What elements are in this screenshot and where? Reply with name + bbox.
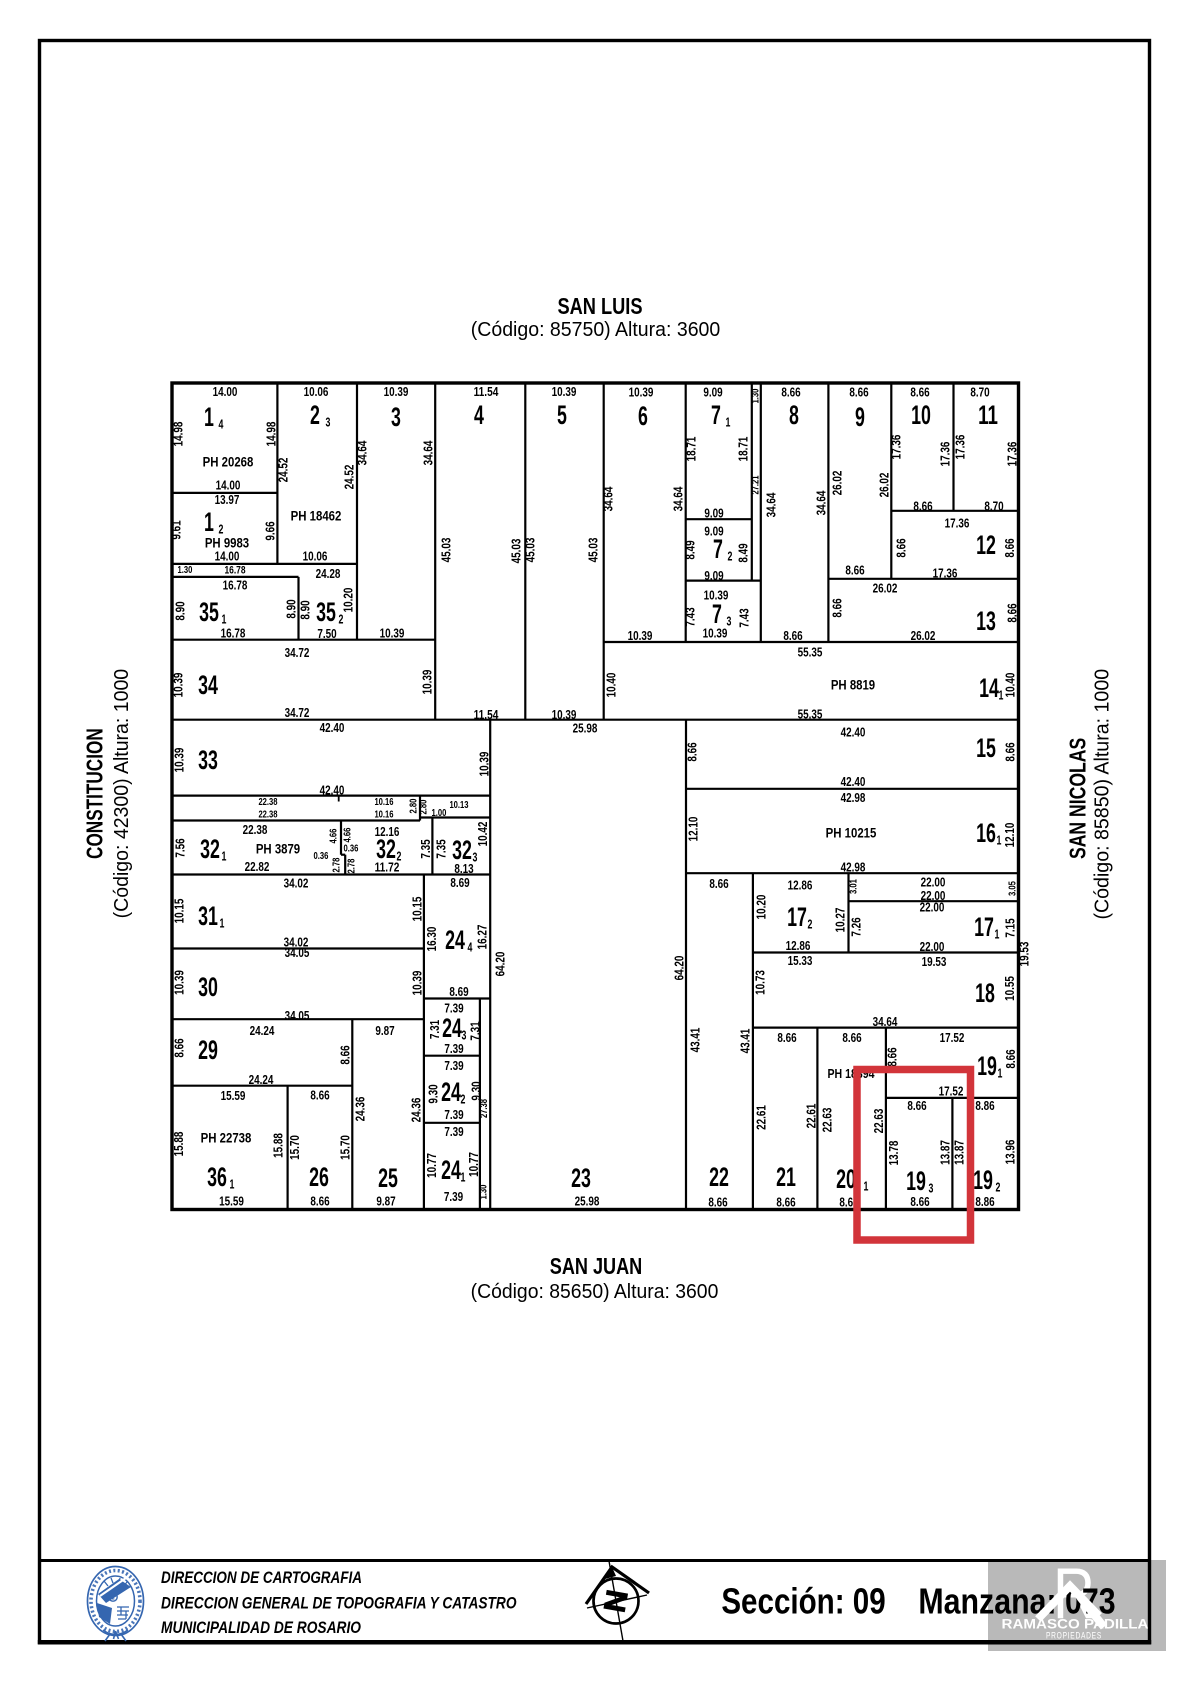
- svg-text:2: 2: [461, 1093, 466, 1107]
- svg-text:PH 3879: PH 3879: [256, 842, 300, 857]
- svg-text:8.70: 8.70: [984, 499, 1003, 514]
- svg-text:15.59: 15.59: [221, 1088, 246, 1103]
- svg-text:8.66: 8.66: [830, 598, 845, 617]
- svg-text:1.30: 1.30: [751, 388, 762, 403]
- svg-text:7.39: 7.39: [444, 1189, 463, 1204]
- svg-text:45.03: 45.03: [586, 538, 601, 563]
- svg-text:4: 4: [219, 418, 224, 432]
- svg-text:10.39: 10.39: [477, 752, 492, 777]
- svg-text:45.03: 45.03: [523, 538, 538, 563]
- svg-text:7: 7: [713, 534, 723, 564]
- svg-text:MUNICIPALIDAD DE ROSARIO: MUNICIPALIDAD DE ROSARIO: [161, 1618, 361, 1637]
- svg-text:9.66: 9.66: [263, 521, 278, 540]
- svg-text:34.64: 34.64: [873, 1014, 898, 1029]
- svg-text:17.36: 17.36: [945, 516, 970, 531]
- svg-text:14: 14: [979, 673, 999, 703]
- svg-text:19: 19: [906, 1166, 926, 1196]
- svg-text:CONSTITUCION: CONSTITUCION: [82, 728, 108, 859]
- svg-text:5: 5: [557, 400, 567, 430]
- svg-text:25.98: 25.98: [573, 721, 598, 736]
- svg-text:55.35: 55.35: [798, 707, 823, 722]
- svg-text:15.33: 15.33: [788, 953, 813, 968]
- svg-text:4.66: 4.66: [329, 828, 340, 843]
- svg-text:17.36: 17.36: [933, 566, 958, 581]
- svg-text:42.40: 42.40: [320, 720, 345, 735]
- svg-text:3: 3: [326, 416, 331, 430]
- svg-text:8.90: 8.90: [173, 601, 188, 620]
- svg-text:34.64: 34.64: [814, 490, 829, 515]
- svg-text:31: 31: [198, 901, 218, 931]
- svg-text:1: 1: [726, 416, 731, 430]
- svg-text:9.09: 9.09: [704, 524, 723, 539]
- svg-text:45.03: 45.03: [509, 539, 524, 564]
- svg-text:35: 35: [199, 597, 219, 627]
- svg-text:8.66: 8.66: [845, 563, 864, 578]
- svg-text:24.24: 24.24: [250, 1023, 275, 1038]
- svg-text:4: 4: [474, 400, 484, 430]
- svg-text:34.05: 34.05: [285, 1008, 310, 1023]
- svg-text:22.82: 22.82: [245, 859, 270, 874]
- svg-text:0.36: 0.36: [314, 851, 329, 862]
- svg-text:8.66: 8.66: [910, 385, 929, 400]
- svg-text:15.88: 15.88: [171, 1132, 186, 1157]
- svg-text:10.40: 10.40: [604, 673, 619, 698]
- svg-text:8.66: 8.66: [172, 1038, 187, 1057]
- svg-text:10.39: 10.39: [703, 626, 728, 641]
- svg-text:43.41: 43.41: [738, 1029, 753, 1054]
- svg-text:22.61: 22.61: [804, 1104, 819, 1129]
- svg-text:34.64: 34.64: [355, 440, 370, 465]
- svg-text:DIRECCION DE CARTOGRAFIA: DIRECCION DE CARTOGRAFIA: [161, 1568, 362, 1587]
- svg-text:26.02: 26.02: [830, 471, 845, 496]
- svg-text:8.70: 8.70: [970, 385, 989, 400]
- svg-text:22.63: 22.63: [820, 1108, 835, 1133]
- svg-text:26.02: 26.02: [877, 473, 892, 498]
- svg-text:8.90: 8.90: [298, 600, 313, 619]
- svg-text:10.20: 10.20: [754, 895, 769, 920]
- svg-text:9.87: 9.87: [375, 1023, 394, 1038]
- svg-text:22.00: 22.00: [920, 900, 945, 915]
- svg-text:1: 1: [995, 928, 1000, 942]
- svg-text:34.72: 34.72: [285, 645, 310, 660]
- svg-text:10.55: 10.55: [1002, 976, 1017, 1001]
- svg-text:(Código: 85650) Altura: 3600: (Código: 85650) Altura: 3600: [471, 1281, 719, 1303]
- svg-text:8.66: 8.66: [310, 1194, 329, 1209]
- svg-text:8: 8: [789, 400, 799, 430]
- svg-text:22.38: 22.38: [258, 810, 278, 821]
- svg-text:7.31: 7.31: [468, 1021, 483, 1040]
- svg-text:2.80: 2.80: [419, 799, 430, 814]
- svg-text:8.13: 8.13: [454, 861, 473, 876]
- svg-text:12.86: 12.86: [788, 878, 813, 893]
- svg-text:1: 1: [220, 917, 225, 931]
- svg-text:24: 24: [441, 1077, 461, 1107]
- svg-text:11.72: 11.72: [375, 860, 400, 875]
- svg-text:42.98: 42.98: [841, 860, 866, 875]
- svg-text:10.39: 10.39: [410, 971, 425, 996]
- svg-text:15.70: 15.70: [287, 1135, 302, 1160]
- svg-text:17.36: 17.36: [1005, 442, 1020, 467]
- svg-text:SAN JUAN: SAN JUAN: [550, 1253, 643, 1279]
- svg-text:34.64: 34.64: [764, 492, 779, 517]
- svg-text:8.66: 8.66: [1005, 603, 1020, 622]
- svg-text:10.77: 10.77: [466, 1152, 481, 1177]
- svg-text:7.39: 7.39: [444, 1058, 463, 1073]
- svg-text:7.56: 7.56: [173, 838, 188, 857]
- svg-text:64.20: 64.20: [672, 956, 687, 981]
- svg-text:34.64: 34.64: [671, 486, 686, 511]
- svg-text:DIRECCION GENERAL DE TOPOGRAFI: DIRECCION GENERAL DE TOPOGRAFIA Y CATAST…: [161, 1594, 517, 1613]
- svg-text:Sección: 09: Sección: 09: [721, 1581, 885, 1622]
- svg-text:35: 35: [316, 597, 336, 627]
- svg-text:17: 17: [787, 902, 807, 932]
- svg-text:13: 13: [976, 606, 996, 636]
- svg-text:26.02: 26.02: [911, 628, 936, 643]
- svg-text:24.28: 24.28: [316, 566, 341, 581]
- svg-text:PH 22738: PH 22738: [201, 1131, 252, 1146]
- svg-text:18.71: 18.71: [684, 437, 699, 462]
- svg-text:SAN LUIS: SAN LUIS: [558, 293, 643, 319]
- svg-text:10.20: 10.20: [341, 588, 356, 613]
- svg-text:16.27: 16.27: [475, 925, 490, 950]
- svg-text:24.52: 24.52: [276, 458, 291, 483]
- svg-text:15.59: 15.59: [219, 1194, 244, 1209]
- svg-text:3.01: 3.01: [849, 879, 860, 894]
- svg-text:15.70: 15.70: [338, 1135, 353, 1160]
- svg-text:7.50: 7.50: [317, 626, 336, 641]
- svg-text:9.30: 9.30: [469, 1081, 484, 1100]
- svg-text:24.36: 24.36: [409, 1098, 424, 1123]
- svg-text:13.87: 13.87: [938, 1140, 953, 1165]
- svg-text:SAN NICOLAS: SAN NICOLAS: [1064, 738, 1090, 859]
- svg-text:12.10: 12.10: [686, 817, 701, 842]
- svg-text:4.66: 4.66: [343, 827, 354, 842]
- svg-text:PH 8819: PH 8819: [831, 678, 875, 693]
- svg-text:25: 25: [378, 1163, 398, 1193]
- svg-text:34.64: 34.64: [601, 486, 616, 511]
- svg-text:34: 34: [198, 670, 218, 700]
- svg-text:2: 2: [996, 1181, 1001, 1195]
- svg-text:7.43: 7.43: [683, 607, 698, 626]
- svg-text:14.98: 14.98: [264, 422, 279, 447]
- svg-text:7.43: 7.43: [737, 608, 752, 627]
- svg-text:10: 10: [911, 400, 931, 430]
- svg-text:13.87: 13.87: [952, 1140, 967, 1165]
- svg-text:10.39: 10.39: [629, 385, 654, 400]
- svg-text:34.05: 34.05: [285, 945, 310, 960]
- svg-text:32: 32: [200, 834, 220, 864]
- svg-text:1.30: 1.30: [479, 1184, 490, 1199]
- svg-text:10.39: 10.39: [420, 670, 435, 695]
- svg-text:30: 30: [198, 972, 218, 1002]
- svg-text:16.78: 16.78: [221, 626, 246, 641]
- svg-text:9: 9: [855, 402, 865, 432]
- svg-text:(Código: 42300) Altura: 1000: (Código: 42300) Altura: 1000: [111, 669, 133, 919]
- svg-text:42.40: 42.40: [841, 725, 866, 740]
- svg-text:13.97: 13.97: [215, 492, 240, 507]
- svg-text:26: 26: [309, 1162, 329, 1192]
- svg-text:14.00: 14.00: [216, 478, 241, 493]
- svg-text:7.35: 7.35: [434, 839, 449, 858]
- svg-text:1: 1: [222, 850, 227, 864]
- svg-text:1.30: 1.30: [178, 565, 193, 576]
- svg-text:14.98: 14.98: [171, 422, 186, 447]
- svg-text:45.03: 45.03: [439, 538, 454, 563]
- svg-text:34.72: 34.72: [285, 705, 310, 720]
- svg-text:8.49: 8.49: [736, 543, 751, 562]
- svg-text:26.02: 26.02: [873, 581, 898, 596]
- svg-text:24: 24: [442, 1013, 462, 1043]
- svg-text:2: 2: [728, 550, 733, 564]
- svg-text:3: 3: [391, 402, 401, 432]
- svg-text:1: 1: [864, 1180, 869, 1194]
- svg-text:16: 16: [976, 818, 996, 848]
- svg-text:2.78: 2.78: [332, 857, 343, 872]
- svg-text:27.21: 27.21: [751, 475, 762, 495]
- svg-text:10.06: 10.06: [303, 549, 328, 564]
- svg-text:8.66: 8.66: [708, 1195, 727, 1210]
- svg-text:8.66: 8.66: [1002, 538, 1017, 557]
- svg-text:17.36: 17.36: [889, 435, 904, 460]
- svg-text:1: 1: [998, 1067, 1003, 1081]
- svg-text:12: 12: [976, 530, 996, 560]
- svg-text:1: 1: [204, 402, 214, 432]
- svg-text:1: 1: [222, 613, 227, 627]
- svg-text:7.35: 7.35: [418, 839, 433, 858]
- svg-text:7.15: 7.15: [1003, 918, 1018, 937]
- svg-text:8.66: 8.66: [1003, 1049, 1018, 1068]
- svg-text:PH 18462: PH 18462: [291, 509, 342, 524]
- svg-text:PH 10215: PH 10215: [826, 826, 877, 841]
- svg-text:9.30: 9.30: [426, 1084, 441, 1103]
- svg-text:10.42: 10.42: [475, 822, 490, 847]
- svg-text:9.87: 9.87: [376, 1194, 395, 1209]
- svg-text:10.40: 10.40: [1003, 673, 1018, 698]
- svg-text:24: 24: [445, 925, 465, 955]
- svg-text:42.40: 42.40: [320, 783, 345, 798]
- svg-text:1: 1: [997, 834, 1002, 848]
- svg-text:7.26: 7.26: [849, 917, 864, 936]
- svg-text:22.38: 22.38: [243, 822, 268, 837]
- svg-text:29: 29: [198, 1035, 218, 1065]
- svg-text:16.78: 16.78: [224, 565, 245, 577]
- svg-text:RAMASCO PADILLA: RAMASCO PADILLA: [1002, 1617, 1149, 1632]
- svg-text:10.16: 10.16: [374, 797, 394, 808]
- svg-text:8.66: 8.66: [885, 1047, 900, 1066]
- svg-text:8.66: 8.66: [849, 385, 868, 400]
- svg-text:2: 2: [808, 918, 813, 932]
- svg-text:64.20: 64.20: [493, 952, 508, 977]
- svg-text:27.38: 27.38: [479, 1099, 490, 1119]
- svg-text:9.09: 9.09: [704, 568, 723, 583]
- svg-text:23: 23: [571, 1163, 591, 1193]
- svg-text:10.13: 10.13: [449, 800, 469, 811]
- svg-text:7.31: 7.31: [427, 1020, 442, 1039]
- svg-text:17.52: 17.52: [939, 1084, 964, 1099]
- svg-text:13.78: 13.78: [886, 1141, 901, 1166]
- svg-text:4: 4: [468, 941, 473, 955]
- svg-text:(Código: 85750) Altura: 3600: (Código: 85750) Altura: 3600: [471, 319, 721, 341]
- svg-text:20: 20: [836, 1164, 856, 1194]
- svg-text:11: 11: [978, 400, 998, 430]
- svg-text:10.39: 10.39: [172, 970, 187, 995]
- svg-text:21: 21: [776, 1162, 796, 1192]
- svg-text:19.53: 19.53: [1017, 942, 1032, 967]
- svg-text:8.86: 8.86: [975, 1098, 994, 1113]
- svg-text:0.36: 0.36: [344, 844, 359, 855]
- svg-text:10.39: 10.39: [628, 628, 653, 643]
- svg-text:13.96: 13.96: [1003, 1140, 1018, 1165]
- svg-text:8.66: 8.66: [338, 1045, 353, 1064]
- svg-text:42.98: 42.98: [841, 790, 866, 805]
- svg-text:10.39: 10.39: [552, 384, 577, 399]
- svg-text:8.86: 8.86: [975, 1194, 994, 1209]
- svg-text:15.88: 15.88: [271, 1133, 286, 1158]
- svg-text:8.66: 8.66: [842, 1030, 861, 1045]
- svg-text:19.53: 19.53: [922, 954, 947, 969]
- svg-text:10.39: 10.39: [171, 673, 186, 698]
- svg-text:10.73: 10.73: [753, 970, 768, 995]
- svg-text:9.61: 9.61: [169, 520, 184, 539]
- svg-text:8.69: 8.69: [449, 984, 468, 999]
- svg-text:8.66: 8.66: [894, 538, 909, 557]
- svg-text:22: 22: [709, 1162, 729, 1192]
- svg-text:PH 20268: PH 20268: [203, 455, 254, 470]
- svg-text:12.10: 12.10: [1002, 823, 1017, 848]
- svg-text:17.36: 17.36: [953, 435, 968, 460]
- svg-text:24.24: 24.24: [249, 1072, 274, 1087]
- svg-text:55.35: 55.35: [798, 645, 823, 660]
- svg-text:10.39: 10.39: [380, 626, 405, 641]
- svg-text:17.36: 17.36: [938, 442, 953, 467]
- svg-text:1: 1: [461, 1171, 466, 1185]
- svg-text:8.66: 8.66: [777, 1030, 796, 1045]
- svg-text:22.63: 22.63: [871, 1109, 886, 1134]
- svg-text:34.64: 34.64: [421, 440, 436, 465]
- svg-text:16.30: 16.30: [424, 927, 439, 952]
- svg-text:8.66: 8.66: [781, 385, 800, 400]
- svg-text:9.09: 9.09: [703, 385, 722, 400]
- svg-text:19: 19: [977, 1051, 997, 1081]
- svg-text:7.39: 7.39: [444, 1001, 463, 1016]
- svg-text:10.15: 10.15: [172, 899, 187, 924]
- svg-text:10.77: 10.77: [424, 1153, 439, 1178]
- svg-text:15: 15: [976, 733, 996, 763]
- svg-text:9.09: 9.09: [704, 506, 723, 521]
- svg-text:18: 18: [975, 978, 995, 1008]
- svg-text:17: 17: [974, 912, 994, 942]
- svg-text:2.78: 2.78: [347, 858, 358, 873]
- svg-text:8.66: 8.66: [776, 1195, 795, 1210]
- svg-text:7.39: 7.39: [444, 1041, 463, 1056]
- svg-text:8.66: 8.66: [685, 742, 700, 761]
- svg-text:14.00: 14.00: [215, 549, 240, 564]
- svg-text:22.38: 22.38: [258, 797, 278, 808]
- svg-text:10.39: 10.39: [704, 588, 729, 603]
- svg-text:11.54: 11.54: [474, 384, 499, 399]
- svg-text:8.66: 8.66: [910, 1194, 929, 1209]
- svg-text:14.00: 14.00: [213, 384, 238, 399]
- svg-text:10.39: 10.39: [172, 748, 187, 773]
- svg-text:19: 19: [973, 1165, 993, 1195]
- svg-text:1: 1: [204, 507, 214, 537]
- svg-text:17.52: 17.52: [940, 1030, 965, 1045]
- svg-text:8.66: 8.66: [783, 628, 802, 643]
- svg-text:12.86: 12.86: [786, 938, 811, 953]
- svg-text:42.40: 42.40: [841, 774, 866, 789]
- svg-text:36: 36: [207, 1162, 227, 1192]
- svg-text:8.90: 8.90: [284, 599, 299, 618]
- svg-text:11.54: 11.54: [474, 707, 499, 722]
- svg-text:10.06: 10.06: [304, 384, 329, 399]
- svg-text:1.00: 1.00: [432, 808, 447, 819]
- svg-text:(Código: 85850) Altura: 1000: (Código: 85850) Altura: 1000: [1091, 669, 1113, 920]
- svg-text:10.39: 10.39: [384, 384, 409, 399]
- svg-text:25.98: 25.98: [575, 1194, 600, 1209]
- svg-text:43.41: 43.41: [688, 1028, 703, 1053]
- svg-text:2: 2: [339, 613, 344, 627]
- svg-text:7.39: 7.39: [444, 1107, 463, 1122]
- svg-text:24: 24: [441, 1155, 461, 1185]
- svg-text:2: 2: [310, 400, 320, 430]
- svg-text:8.49: 8.49: [683, 540, 698, 559]
- svg-text:8.66: 8.66: [709, 876, 728, 891]
- svg-text:16.78: 16.78: [223, 578, 248, 593]
- svg-text:10.16: 10.16: [374, 810, 394, 821]
- svg-text:PROPIEDADES: PROPIEDADES: [1046, 1631, 1102, 1641]
- svg-text:8.66: 8.66: [310, 1088, 329, 1103]
- svg-text:7.39: 7.39: [444, 1124, 463, 1139]
- svg-text:8.66: 8.66: [1003, 742, 1018, 761]
- svg-text:1: 1: [230, 1178, 235, 1192]
- svg-text:3.05: 3.05: [1008, 881, 1019, 896]
- svg-text:34.02: 34.02: [284, 876, 309, 891]
- svg-text:8.66: 8.66: [913, 499, 932, 514]
- svg-text:8.66: 8.66: [907, 1098, 926, 1113]
- svg-text:2: 2: [219, 523, 224, 537]
- svg-text:24.52: 24.52: [342, 465, 357, 490]
- svg-text:22.00: 22.00: [920, 939, 945, 954]
- svg-text:18.71: 18.71: [736, 437, 751, 462]
- svg-text:7: 7: [712, 599, 722, 629]
- svg-text:33: 33: [198, 745, 218, 775]
- svg-text:22.61: 22.61: [754, 1105, 769, 1130]
- svg-text:8.69: 8.69: [450, 875, 469, 890]
- svg-text:10.15: 10.15: [410, 897, 425, 922]
- svg-text:24.36: 24.36: [353, 1097, 368, 1122]
- svg-text:12.16: 12.16: [375, 824, 400, 839]
- svg-text:6: 6: [638, 401, 648, 431]
- svg-text:7: 7: [711, 400, 721, 430]
- svg-text:10.27: 10.27: [833, 908, 848, 933]
